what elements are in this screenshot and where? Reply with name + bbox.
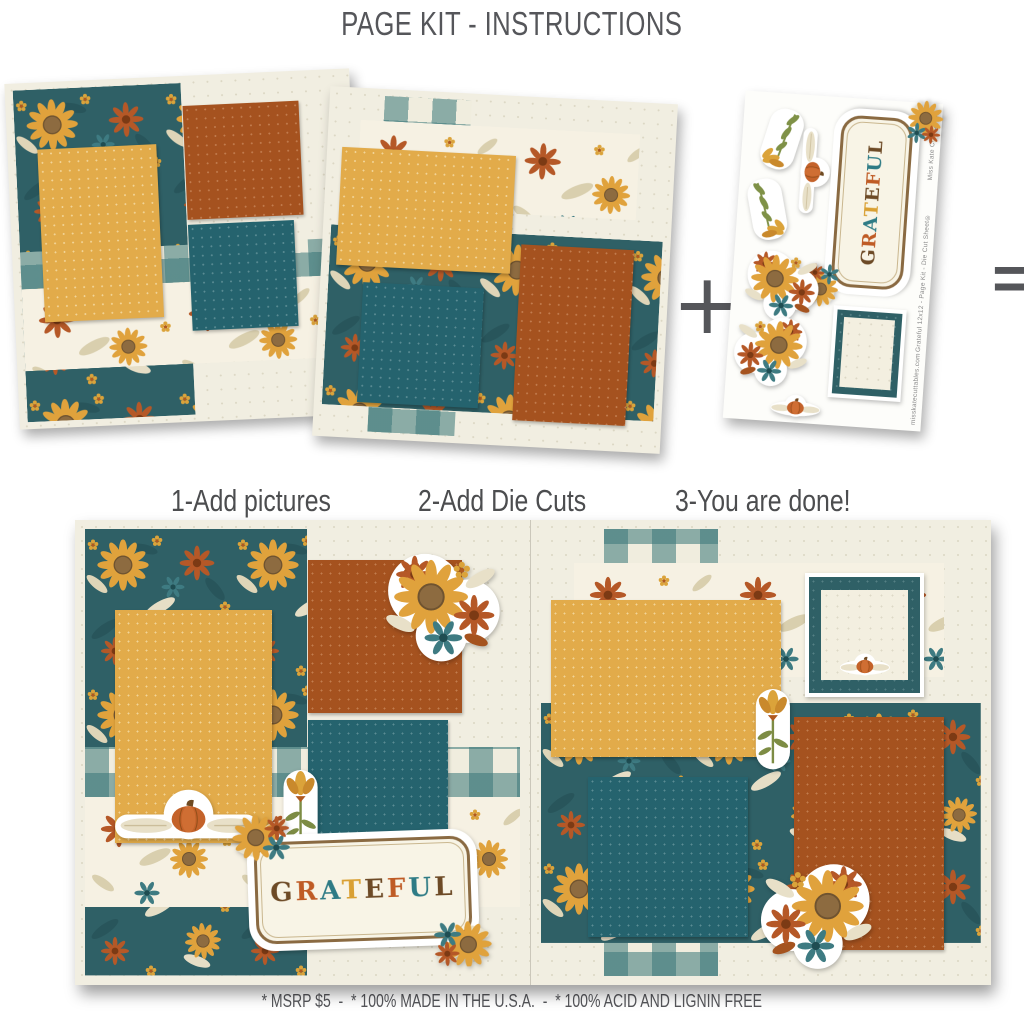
framed-square-sticker (805, 573, 925, 696)
photo-mat-teal (357, 282, 484, 409)
page-kit-instructions-graphic: PAGE KIT - INSTRUCTIONS + GRATEFUL Miss … (0, 0, 1024, 1024)
kit-page-layout-2 (312, 86, 678, 454)
photo-mat-teal (188, 220, 299, 331)
steps-row: 1-Add pictures 2-Add Die Cuts 3-You are … (0, 483, 1024, 519)
photo-mat-rust (512, 245, 634, 426)
gold-flower-sprig-sticker (743, 685, 803, 773)
step-3: 3-You are done! (675, 483, 851, 519)
sunflower-corner-icon (229, 814, 295, 864)
sunflower-cluster-die-cut (726, 300, 812, 400)
photo-mat-rust (182, 100, 304, 219)
sunflower-corner-icon (429, 917, 495, 967)
grateful-label-sticker: GRATEFUL (246, 828, 480, 952)
grateful-word: GRATEFUL (270, 871, 456, 907)
grateful-label-die-cut: GRATEFUL (823, 107, 922, 299)
grateful-word: GRATEFUL (857, 139, 888, 266)
step-1: 1-Add pictures (171, 483, 331, 519)
finished-page-right (530, 520, 991, 985)
footer-note: * MSRP $5 - * 100% MADE IN THE U.S.A. - … (0, 991, 1024, 1012)
pumpkin-feather-die-cut (766, 391, 823, 421)
die-cut-sheet: GRATEFUL Miss Kate Cuttables™ Grateful 1… (723, 90, 943, 431)
sheet-url-text: misskatecuttables.com (910, 353, 922, 425)
finished-page-left: GRATEFUL (75, 520, 530, 985)
framed-square-die-cut (827, 305, 906, 402)
photo-mat-gold (38, 144, 165, 323)
sunflower-corner-icon (903, 98, 944, 149)
photo-mat-gold (336, 147, 516, 274)
page-title: PAGE KIT - INSTRUCTIONS (0, 5, 1024, 43)
step-2: 2-Add Die Cuts (418, 483, 586, 519)
photo-mat-teal (588, 777, 748, 937)
pumpkin-icon (837, 650, 893, 679)
kit-page-layout-1 (4, 68, 364, 429)
equals-icon: = (986, 234, 1024, 318)
sunflower-cluster-sticker (754, 850, 874, 980)
finished-pages: GRATEFUL (75, 520, 990, 985)
sunflower-cluster-sticker (384, 534, 507, 678)
sheet-product-text: Grateful 12x12 - Page Kit - Die Cut Shee… (915, 213, 932, 352)
